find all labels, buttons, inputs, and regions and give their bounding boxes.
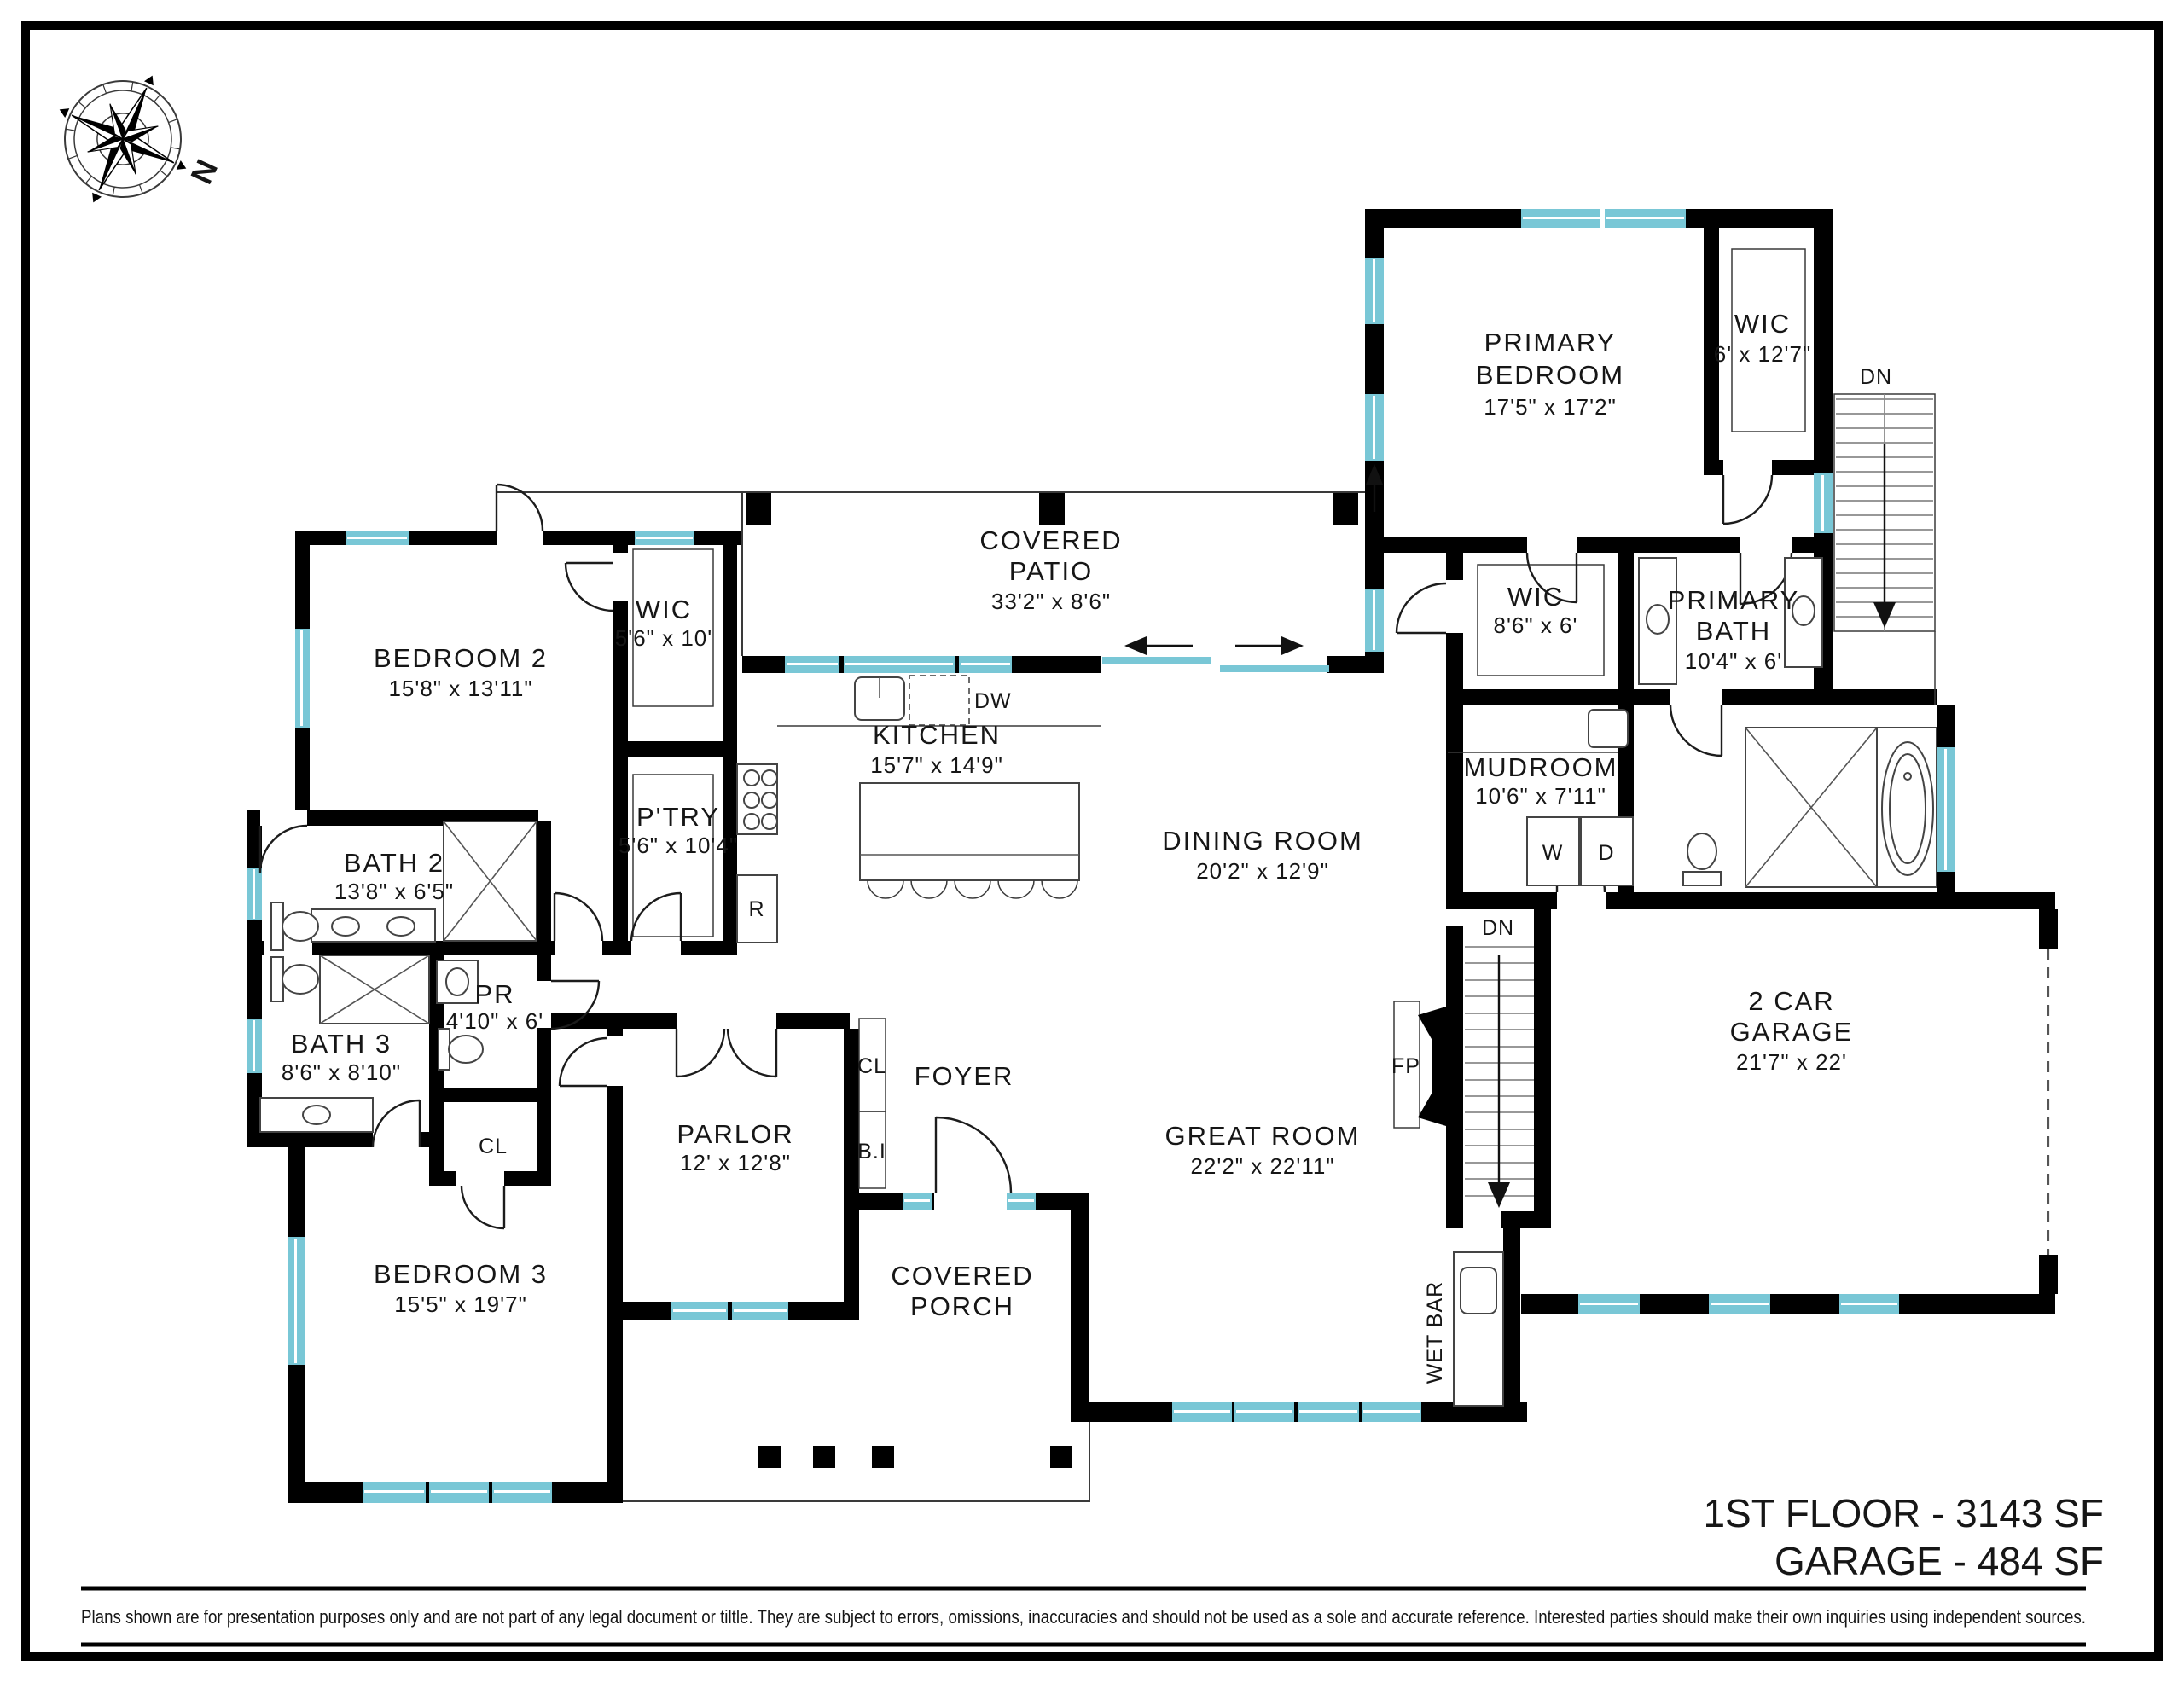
marker-dn-upper: DN bbox=[1860, 365, 1892, 389]
room-label-dining-room: DINING ROOM bbox=[1162, 826, 1363, 856]
marker-wet-bar: WET BAR bbox=[1423, 1281, 1447, 1384]
disclaimer-text: Plans shown are for presentation purpose… bbox=[81, 1606, 2086, 1628]
room-label-great-room: GREAT ROOM bbox=[1165, 1121, 1361, 1151]
room-label-covered-porch: COVERED bbox=[891, 1261, 1033, 1291]
room-dims-pantry: 5'6" x 10'4" bbox=[619, 833, 738, 858]
wet-bar-sink bbox=[1461, 1268, 1496, 1314]
sink-icon bbox=[1647, 605, 1669, 634]
marker-built-in: B.I bbox=[857, 1140, 886, 1164]
room-dims-bedroom3: 15'5" x 19'7" bbox=[394, 1291, 527, 1317]
island-stools bbox=[868, 880, 1077, 898]
fireplace bbox=[1418, 1007, 1446, 1126]
sink-icon bbox=[332, 917, 359, 936]
stairs-upper-right bbox=[1836, 394, 1933, 631]
room-label-wic2: WIC bbox=[636, 595, 692, 624]
room-dims-powder: 4'10" x 6' bbox=[446, 1008, 543, 1034]
room-dims-dining-room: 20'2" x 12'9" bbox=[1196, 858, 1329, 884]
room-label-mudroom: MUDROOM bbox=[1463, 752, 1618, 782]
room-label-covered-porch: PORCH bbox=[910, 1291, 1014, 1321]
sink-icon bbox=[303, 1106, 330, 1124]
room-label-primary-bedroom: PRIMARY bbox=[1484, 328, 1617, 357]
room-label-parlor: PARLOR bbox=[677, 1119, 793, 1149]
garage-area-label: GARAGE - 484 SF bbox=[1774, 1539, 2104, 1583]
room-dims-primary-bath: 10'4" x 6' bbox=[1685, 648, 1782, 674]
room-dims-wic-hall: 8'6" x 6' bbox=[1494, 612, 1578, 638]
room-dims-mudroom: 10'6" x 7'11" bbox=[1475, 783, 1606, 809]
room-label-powder: PR bbox=[474, 979, 514, 1009]
room-label-pantry: P'TRY bbox=[636, 802, 720, 832]
room-dims-kitchen: 15'7" x 14'9" bbox=[870, 752, 1003, 778]
room-label-bedroom2: BEDROOM 2 bbox=[374, 643, 548, 673]
room-label-kitchen: KITCHEN bbox=[873, 720, 1001, 750]
room-label-covered-patio: PATIO bbox=[1009, 556, 1093, 586]
room-dims-parlor: 12' x 12'8" bbox=[680, 1150, 791, 1175]
room-label-bath3: BATH 3 bbox=[291, 1029, 392, 1059]
footer: 1ST FLOOR - 3143 SF GARAGE - 484 SF Plan… bbox=[81, 1491, 2104, 1645]
marker-cl-foyer: CL bbox=[857, 1054, 886, 1078]
room-label-primary-bath: PRIMARY bbox=[1668, 585, 1800, 615]
room-label-garage: GARAGE bbox=[1730, 1017, 1854, 1047]
sink-icon bbox=[387, 917, 415, 936]
marker-washer: W bbox=[1542, 841, 1564, 865]
room-dims-wic2: 5'6" x 10' bbox=[615, 625, 712, 651]
marker-cl-hall: CL bbox=[479, 1135, 508, 1158]
marker-dryer: D bbox=[1598, 841, 1614, 865]
room-dims-covered-patio: 33'2" x 8'6" bbox=[991, 589, 1111, 614]
marker-refrigerator: R bbox=[748, 897, 764, 921]
room-label-wic-hall: WIC bbox=[1507, 582, 1564, 612]
room-label-primary-bedroom: BEDROOM bbox=[1476, 360, 1624, 390]
room-dims-garage: 21'7" x 22' bbox=[1736, 1049, 1847, 1075]
stairs-center bbox=[1465, 947, 1534, 1208]
toilet-icon bbox=[271, 902, 283, 950]
room-label-foyer: FOYER bbox=[915, 1061, 1014, 1091]
toilet-icon bbox=[271, 957, 283, 1001]
room-label-bedroom3: BEDROOM 3 bbox=[374, 1259, 548, 1289]
mudroom-sink bbox=[1589, 710, 1628, 747]
room-dims-wic-primary: 6' x 12'7" bbox=[1714, 341, 1811, 367]
dishwasher bbox=[909, 676, 969, 725]
room-dims-bedroom2: 15'8" x 13'11" bbox=[388, 676, 532, 701]
room-label-wic-primary: WIC bbox=[1734, 309, 1791, 339]
floor-plan-svg: N PRIMARY BEDROOM 17'5" x 17'2" WIC 6' x… bbox=[0, 0, 2184, 1683]
kitchen-island bbox=[860, 783, 1079, 880]
marker-dn-lower: DN bbox=[1482, 916, 1514, 940]
bath2-vanity bbox=[311, 909, 435, 942]
toilet-icon bbox=[1687, 833, 1716, 869]
room-label-garage: 2 CAR bbox=[1748, 986, 1834, 1016]
room-dims-great-room: 22'2" x 22'11" bbox=[1190, 1153, 1334, 1179]
room-label-covered-patio: COVERED bbox=[979, 525, 1122, 555]
room-label-primary-bath: BATH bbox=[1696, 616, 1771, 646]
room-label-bath2: BATH 2 bbox=[344, 848, 444, 878]
marker-dw: DW bbox=[974, 689, 1012, 713]
room-dims-primary-bedroom: 17'5" x 17'2" bbox=[1484, 394, 1617, 420]
north-label: N bbox=[183, 154, 224, 189]
markers: DN DN FP WET BAR DW R CL CL B.I W D bbox=[479, 365, 1892, 1384]
compass-rose-icon: N bbox=[30, 46, 224, 232]
marker-fp: FP bbox=[1391, 1054, 1420, 1078]
floor-area-label: 1ST FLOOR - 3143 SF bbox=[1703, 1491, 2104, 1535]
room-dims-bath3: 8'6" x 8'10" bbox=[282, 1059, 401, 1085]
room-dims-bath2: 13'8" x 6'5" bbox=[334, 879, 454, 904]
